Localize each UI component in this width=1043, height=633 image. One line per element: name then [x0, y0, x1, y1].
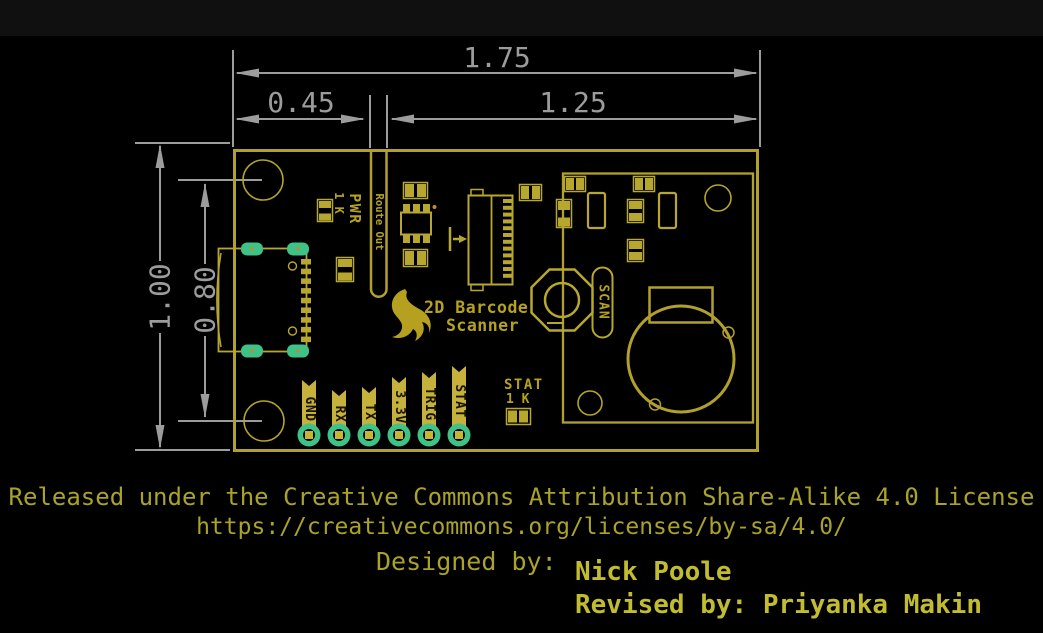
pin-3v3: 3.3V: [388, 377, 411, 447]
pin-label: TX: [362, 404, 377, 421]
pin-tx: TX: [358, 387, 381, 447]
pin-stat: STAT: [448, 366, 471, 447]
route-out-label: Route Out: [373, 194, 385, 251]
stat-label: STAT: [504, 377, 544, 393]
pin-label: 3.3V: [392, 390, 407, 423]
smd-component: [634, 177, 655, 192]
license-line-1: Released under the Creative Commons Attr…: [0, 484, 1043, 510]
product-name-line1: 2D Barcode: [424, 298, 528, 317]
pwr-label-group: PWR 1 K: [318, 192, 365, 281]
route-out-slot: Route Out: [371, 150, 387, 297]
pin-label: GND: [302, 397, 317, 422]
smd-component: [507, 409, 531, 425]
fpc-connector: [469, 190, 513, 291]
pin-header: GND RX TX 3.3V TRIG: [298, 366, 471, 447]
scan-button-label: SCAN: [596, 284, 611, 319]
dim-board-width: 1.75: [463, 41, 530, 74]
smd-component: [404, 250, 428, 267]
smd-component: [628, 200, 644, 223]
testpoint-arrow: [450, 227, 467, 251]
component-courtyard: [659, 193, 676, 228]
pwr-resistor-label: 1 K: [332, 192, 346, 214]
dim-board-height: 1.00: [144, 263, 177, 330]
pcb-dimension-drawing: 1.75 0.45 1.25 1.00 0.80: [0, 0, 1043, 480]
smd-component: [520, 185, 542, 201]
smd-component: [337, 258, 354, 282]
scanner-lens: [628, 288, 734, 413]
pin-label: RX: [332, 406, 347, 423]
dim-module-section: 1.25: [539, 86, 606, 119]
product-name-line2: Scanner: [446, 316, 519, 335]
six-pin-ic: [401, 204, 437, 243]
mounting-hole: [578, 391, 602, 415]
license-line-2: https://creativecommons.org/licenses/by-…: [0, 515, 1043, 540]
designed-by-label: Designed by:: [376, 547, 557, 576]
smd-component: [565, 177, 586, 192]
pcb-drawing-svg: 1.75 0.45 1.25 1.00 0.80: [0, 0, 1043, 480]
pwr-label: PWR: [346, 193, 364, 225]
pin-label: TRIG: [422, 387, 437, 420]
pin-trig: TRIG: [418, 372, 441, 447]
stat-label-group: STAT 1 K: [504, 377, 544, 425]
designer-name: Nick Poole: [575, 557, 732, 587]
smd-component: [628, 240, 644, 262]
pin-label: STAT: [452, 384, 467, 417]
pin-rx: RX: [328, 390, 351, 447]
pin-gnd: GND: [298, 380, 321, 447]
mounting-hole: [705, 185, 731, 211]
usb-pin-comb: [301, 259, 311, 342]
smd-component: [404, 183, 428, 199]
dimension-lines: [135, 50, 760, 450]
component-courtyard: [588, 193, 605, 228]
smd-component: [318, 200, 333, 222]
stat-resistor-label: 1 K: [506, 392, 530, 407]
usb-connector: [217, 243, 311, 358]
revised-by: Revised by: Priyanka Makin: [575, 590, 982, 620]
dim-usb-section: 0.45: [267, 86, 334, 119]
